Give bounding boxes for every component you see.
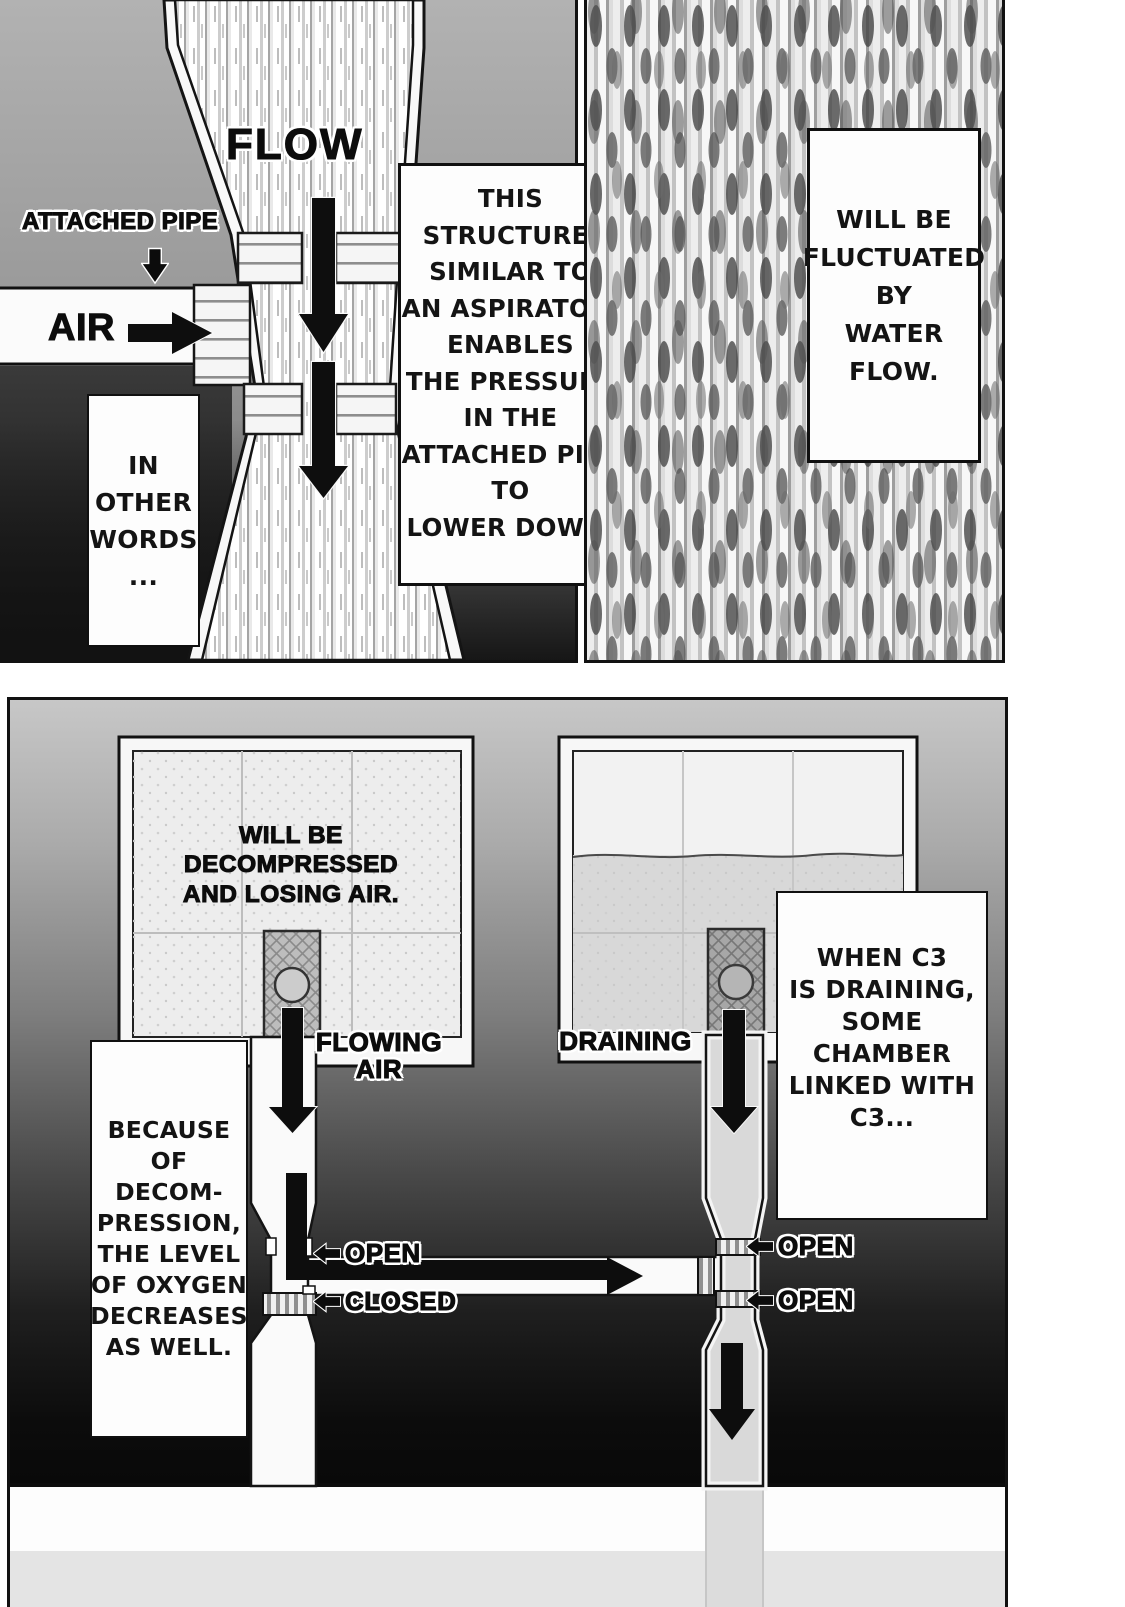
air-label: AIR: [48, 309, 115, 349]
draining-label: DRAINING: [548, 1028, 703, 1055]
when-c3-note-box: WHEN C3 IS DRAINING, SOME CHAMBER LINKED…: [776, 891, 988, 1220]
left-arrow-icon: [313, 1242, 341, 1265]
because-note-text: BECAUSE OF DECOM- PRESSION, THE LEVEL OF…: [90, 1115, 248, 1363]
because-note-box: BECAUSE OF DECOM- PRESSION, THE LEVEL OF…: [90, 1040, 248, 1438]
channel-coupler: [698, 1257, 714, 1295]
fluctuated-note-text: WILL BE FLUCTUATED BY WATER FLOW.: [803, 201, 986, 391]
valve-label-right-bottom-open: OPEN: [746, 1287, 854, 1314]
in-other-words-box: IN OTHER WORDS ...: [87, 394, 200, 647]
flowing-air-label: FLOWING AIR: [303, 1029, 455, 1084]
left-chamber-caption: WILL BE DECOMPRESSED AND LOSING AIR.: [126, 821, 456, 909]
attached-pipe-down-arrow-icon: [141, 247, 169, 285]
valve-label-left-closed: CLOSED: [313, 1288, 456, 1315]
left-arrow-icon: [746, 1289, 774, 1312]
flow-label: FLOW: [226, 122, 364, 168]
panel-water-flow: WILL BE FLUCTUATED BY WATER FLOW.: [584, 0, 1005, 663]
attached-pipe-label: ATTACHED PIPE: [22, 209, 218, 234]
manga-page: FLOW ATTACHED PIPE AIR THIS STRUCTURE, S…: [0, 0, 1125, 1607]
left-arrow-icon: [746, 1235, 774, 1258]
when-c3-note-text: WHEN C3 IS DRAINING, SOME CHAMBER LINKED…: [778, 942, 986, 1134]
valve-label-right-top-open: OPEN: [746, 1233, 854, 1260]
in-other-words-text: IN OTHER WORDS ...: [89, 447, 197, 595]
fluctuated-note-box: WILL BE FLUCTUATED BY WATER FLOW.: [807, 128, 981, 463]
panel-aspirator-diagram: FLOW ATTACHED PIPE AIR THIS STRUCTURE, S…: [0, 0, 578, 663]
valve-left-closed: [263, 1293, 316, 1315]
valve-label-left-open: OPEN: [313, 1240, 421, 1267]
left-arrow-icon: [313, 1290, 341, 1313]
panel-chambers-diagram: WILL BE DECOMPRESSED AND LOSING AIR. FLO…: [7, 697, 1008, 1607]
